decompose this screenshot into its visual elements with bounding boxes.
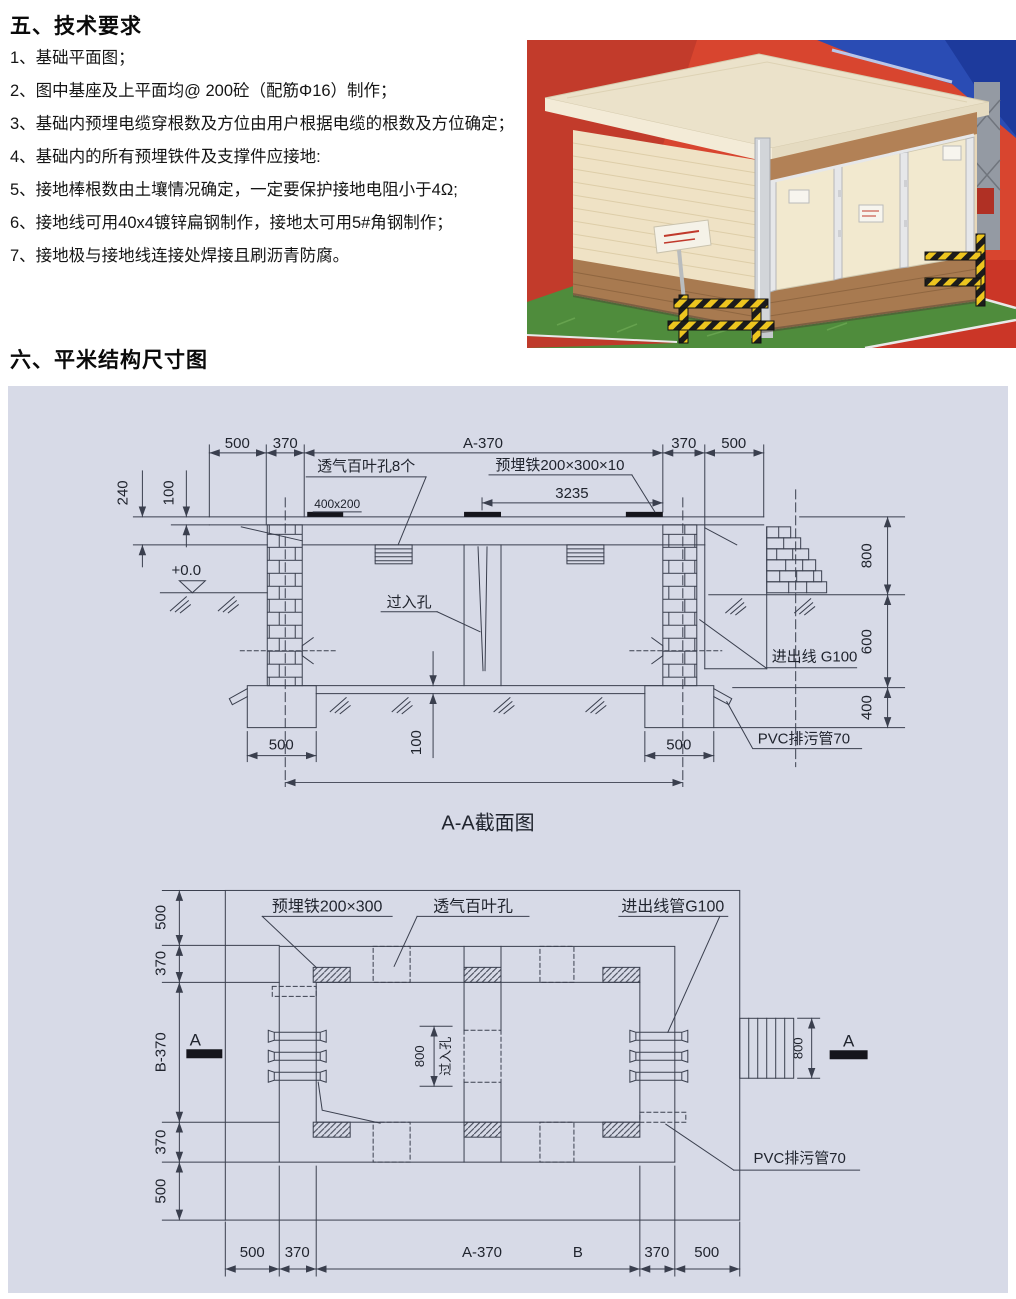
annotation-label: PVC排污管70	[754, 1150, 846, 1167]
dim-label: 500	[666, 737, 691, 754]
annotation-label: 过入孔	[387, 594, 432, 611]
dim-label: 370	[285, 1244, 310, 1261]
dim-label: 500	[269, 737, 294, 754]
kiosk-building	[545, 54, 989, 338]
dim-label: 800	[412, 1045, 427, 1067]
section6-title: 六、平米结构尺寸图	[10, 344, 208, 374]
level-label: +0.0	[172, 562, 202, 579]
annotation-label: 过入孔	[438, 1037, 453, 1076]
dim-label: 800	[791, 1037, 806, 1059]
section-marker-label: A	[190, 1030, 202, 1049]
section5-title: 五、技术要求	[10, 10, 142, 40]
section-view-title: A-A截面图	[441, 812, 534, 835]
annotation-label: 400x200	[314, 497, 360, 511]
dim-label: 240	[114, 480, 131, 505]
dim-label: 370	[152, 951, 169, 976]
annotation-label: 透气百叶孔	[433, 897, 513, 915]
dim-label: 500	[721, 435, 746, 452]
list-item: 3、基础内预埋电缆穿根数及方位由用户根据电缆的根数及方位确定；	[10, 108, 522, 141]
dim-label: 370	[273, 435, 298, 452]
dim-label: B-370	[152, 1032, 169, 1072]
dim-label: 100	[160, 480, 177, 505]
dim-label: B	[573, 1244, 583, 1261]
list-item: 1、基础平面图；	[10, 42, 522, 75]
annotation-label: PVC排污管70	[758, 731, 850, 748]
dim-label: 370	[152, 1130, 169, 1155]
dim-label: 370	[644, 1244, 669, 1261]
dim-label: 100	[408, 730, 425, 755]
section-marker-label: A	[843, 1031, 855, 1050]
dim-label: 500	[152, 905, 169, 930]
dim-label: 800	[859, 543, 876, 568]
annotation-label: 进出线管G100	[621, 897, 724, 915]
requirements-list: 1、基础平面图； 2、图中基座及上平面均@ 200砼（配筋Φ16）制作； 3、基…	[10, 42, 522, 273]
substation-photo	[527, 40, 1016, 348]
plan-view: 500 370 B-370 370 500 80	[152, 890, 867, 1276]
list-item: 5、接地棒根数由土壤情况确定，一定要保护接地电阻小于4Ω;	[10, 174, 522, 207]
dim-label: 370	[671, 435, 696, 452]
list-item: 7、接地极与接地线连接处焊接且刷沥青防腐。	[10, 240, 522, 273]
dim-label: 400	[859, 695, 876, 720]
dim-label: A-370	[462, 1244, 502, 1261]
annotation-label: 预埋铁200×300×10	[495, 457, 624, 474]
dim-label: 500	[152, 1179, 169, 1204]
annotation-label: 进出线 G100	[772, 649, 858, 666]
list-item: 4、基础内的所有预埋铁件及支撑件应接地:	[10, 141, 522, 174]
dim-label: 3235	[555, 485, 588, 502]
annotation-label: 预埋铁200×300	[272, 897, 383, 915]
list-item: 2、图中基座及上平面均@ 200砼（配筋Φ16）制作；	[10, 75, 522, 108]
section-view: 500 370 A-370 370 500 240 100 +0.0 3235 …	[114, 435, 904, 835]
annotation-label: 透气百叶孔8个	[317, 458, 415, 475]
dim-label: 600	[859, 629, 876, 654]
structure-drawings: 500 370 A-370 370 500 240 100 +0.0 3235 …	[8, 386, 1008, 1293]
dim-label: A-370	[463, 435, 503, 452]
dim-label: 500	[225, 435, 250, 452]
dim-label: 500	[694, 1244, 719, 1261]
drawings-panel: 500 370 A-370 370 500 240 100 +0.0 3235 …	[8, 386, 1008, 1293]
list-item: 6、接地线可用40x4镀锌扁钢制作，接地太可用5#角钢制作；	[10, 207, 522, 240]
dim-label: 500	[240, 1244, 265, 1261]
